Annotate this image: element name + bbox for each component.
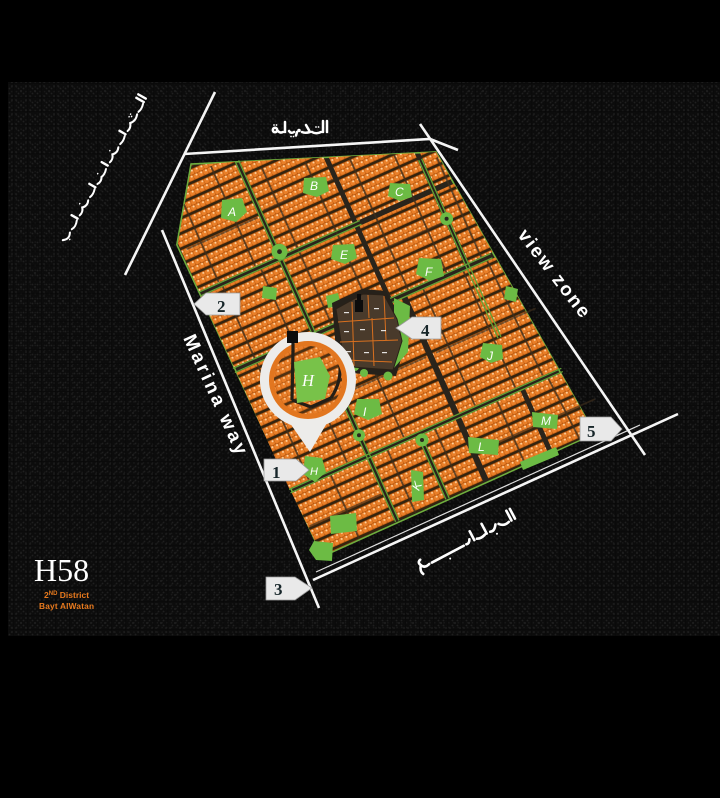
svg-text:Bayt AlWatan: Bayt AlWatan bbox=[39, 601, 94, 611]
svg-text:5: 5 bbox=[587, 422, 596, 441]
svg-text:M: M bbox=[541, 414, 551, 428]
svg-text:F: F bbox=[425, 265, 433, 279]
svg-text:1: 1 bbox=[272, 463, 281, 482]
svg-text:E: E bbox=[340, 248, 349, 262]
svg-text:C: C bbox=[395, 185, 404, 199]
svg-text:H: H bbox=[310, 466, 318, 478]
svg-text:J: J bbox=[486, 349, 494, 363]
svg-text:H: H bbox=[301, 371, 315, 390]
svg-text:H58: H58 bbox=[34, 552, 89, 588]
svg-text:3: 3 bbox=[274, 580, 283, 599]
svg-text:2: 2 bbox=[217, 297, 226, 316]
svg-text:4: 4 bbox=[421, 321, 430, 340]
svg-text:B: B bbox=[310, 179, 318, 193]
svg-text:L: L bbox=[478, 440, 485, 454]
svg-text:A: A bbox=[227, 205, 236, 219]
